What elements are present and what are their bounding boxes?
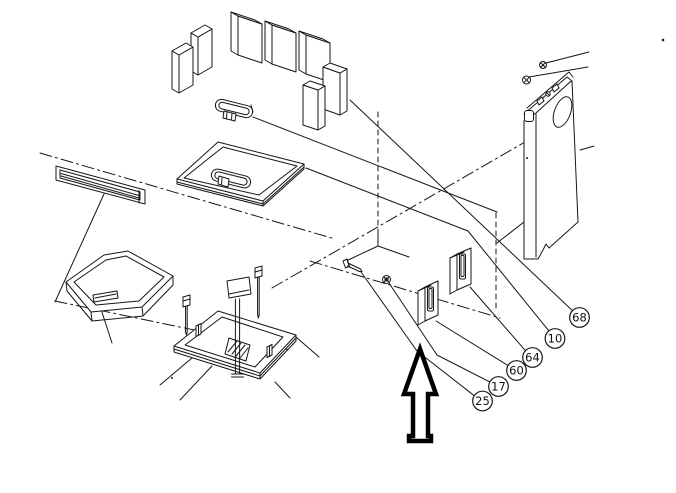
screw xyxy=(255,266,262,318)
callout-label: 68 xyxy=(572,311,587,325)
callout-label: 64 xyxy=(525,351,540,365)
frame-leader-stub xyxy=(275,382,290,398)
axis-lines xyxy=(40,112,525,350)
exploded-diagram: 68 10 64 60 17 25 xyxy=(0,0,676,493)
callout-label: 10 xyxy=(548,332,563,346)
top-panel xyxy=(177,142,304,206)
block xyxy=(265,21,296,72)
side-panel xyxy=(524,72,578,259)
mount-frame-assembly xyxy=(174,266,296,379)
long-screw xyxy=(343,259,362,272)
frame-clip xyxy=(267,345,272,358)
panel-screw-leader xyxy=(529,67,588,77)
washer xyxy=(383,276,391,284)
callout-68: 68 xyxy=(570,308,590,328)
callout-label: 25 xyxy=(475,394,490,408)
block xyxy=(191,25,212,75)
channel-bracket xyxy=(450,248,471,294)
callout-balloons: 68 10 64 60 17 25 xyxy=(473,308,590,411)
callout-label: 17 xyxy=(491,380,506,394)
small-rounded-tray xyxy=(214,98,254,121)
block xyxy=(303,81,325,130)
frame-leader-stub xyxy=(180,366,212,400)
leader-64 xyxy=(470,287,526,351)
vent-grille-bar xyxy=(56,166,145,204)
panel-edge-stub xyxy=(580,146,594,150)
block xyxy=(231,12,262,63)
pentagon-tray xyxy=(66,251,173,321)
block-set xyxy=(172,12,347,130)
callout-17: 17 xyxy=(489,377,509,397)
direction-arrow xyxy=(404,349,436,441)
callout-10: 10 xyxy=(545,329,565,349)
callout-64: 64 xyxy=(523,348,543,368)
channel-bracket xyxy=(418,281,438,325)
callout-label: 60 xyxy=(509,364,524,378)
callout-25: 25 xyxy=(473,391,493,411)
panel-screw xyxy=(523,76,531,84)
panel-screw xyxy=(540,62,547,69)
leader-60 xyxy=(436,321,508,366)
block xyxy=(323,63,347,115)
frame-leader-stub xyxy=(160,358,192,385)
bracket-plate xyxy=(227,277,251,298)
callout-60: 60 xyxy=(507,361,527,381)
block xyxy=(172,43,193,93)
diagram-page: 68 10 64 60 17 25 xyxy=(0,0,676,493)
frame-clip xyxy=(196,324,201,337)
frame-leader-stub xyxy=(296,337,319,357)
panel-screw-leader xyxy=(546,52,589,63)
small-screw-icon xyxy=(546,92,550,96)
